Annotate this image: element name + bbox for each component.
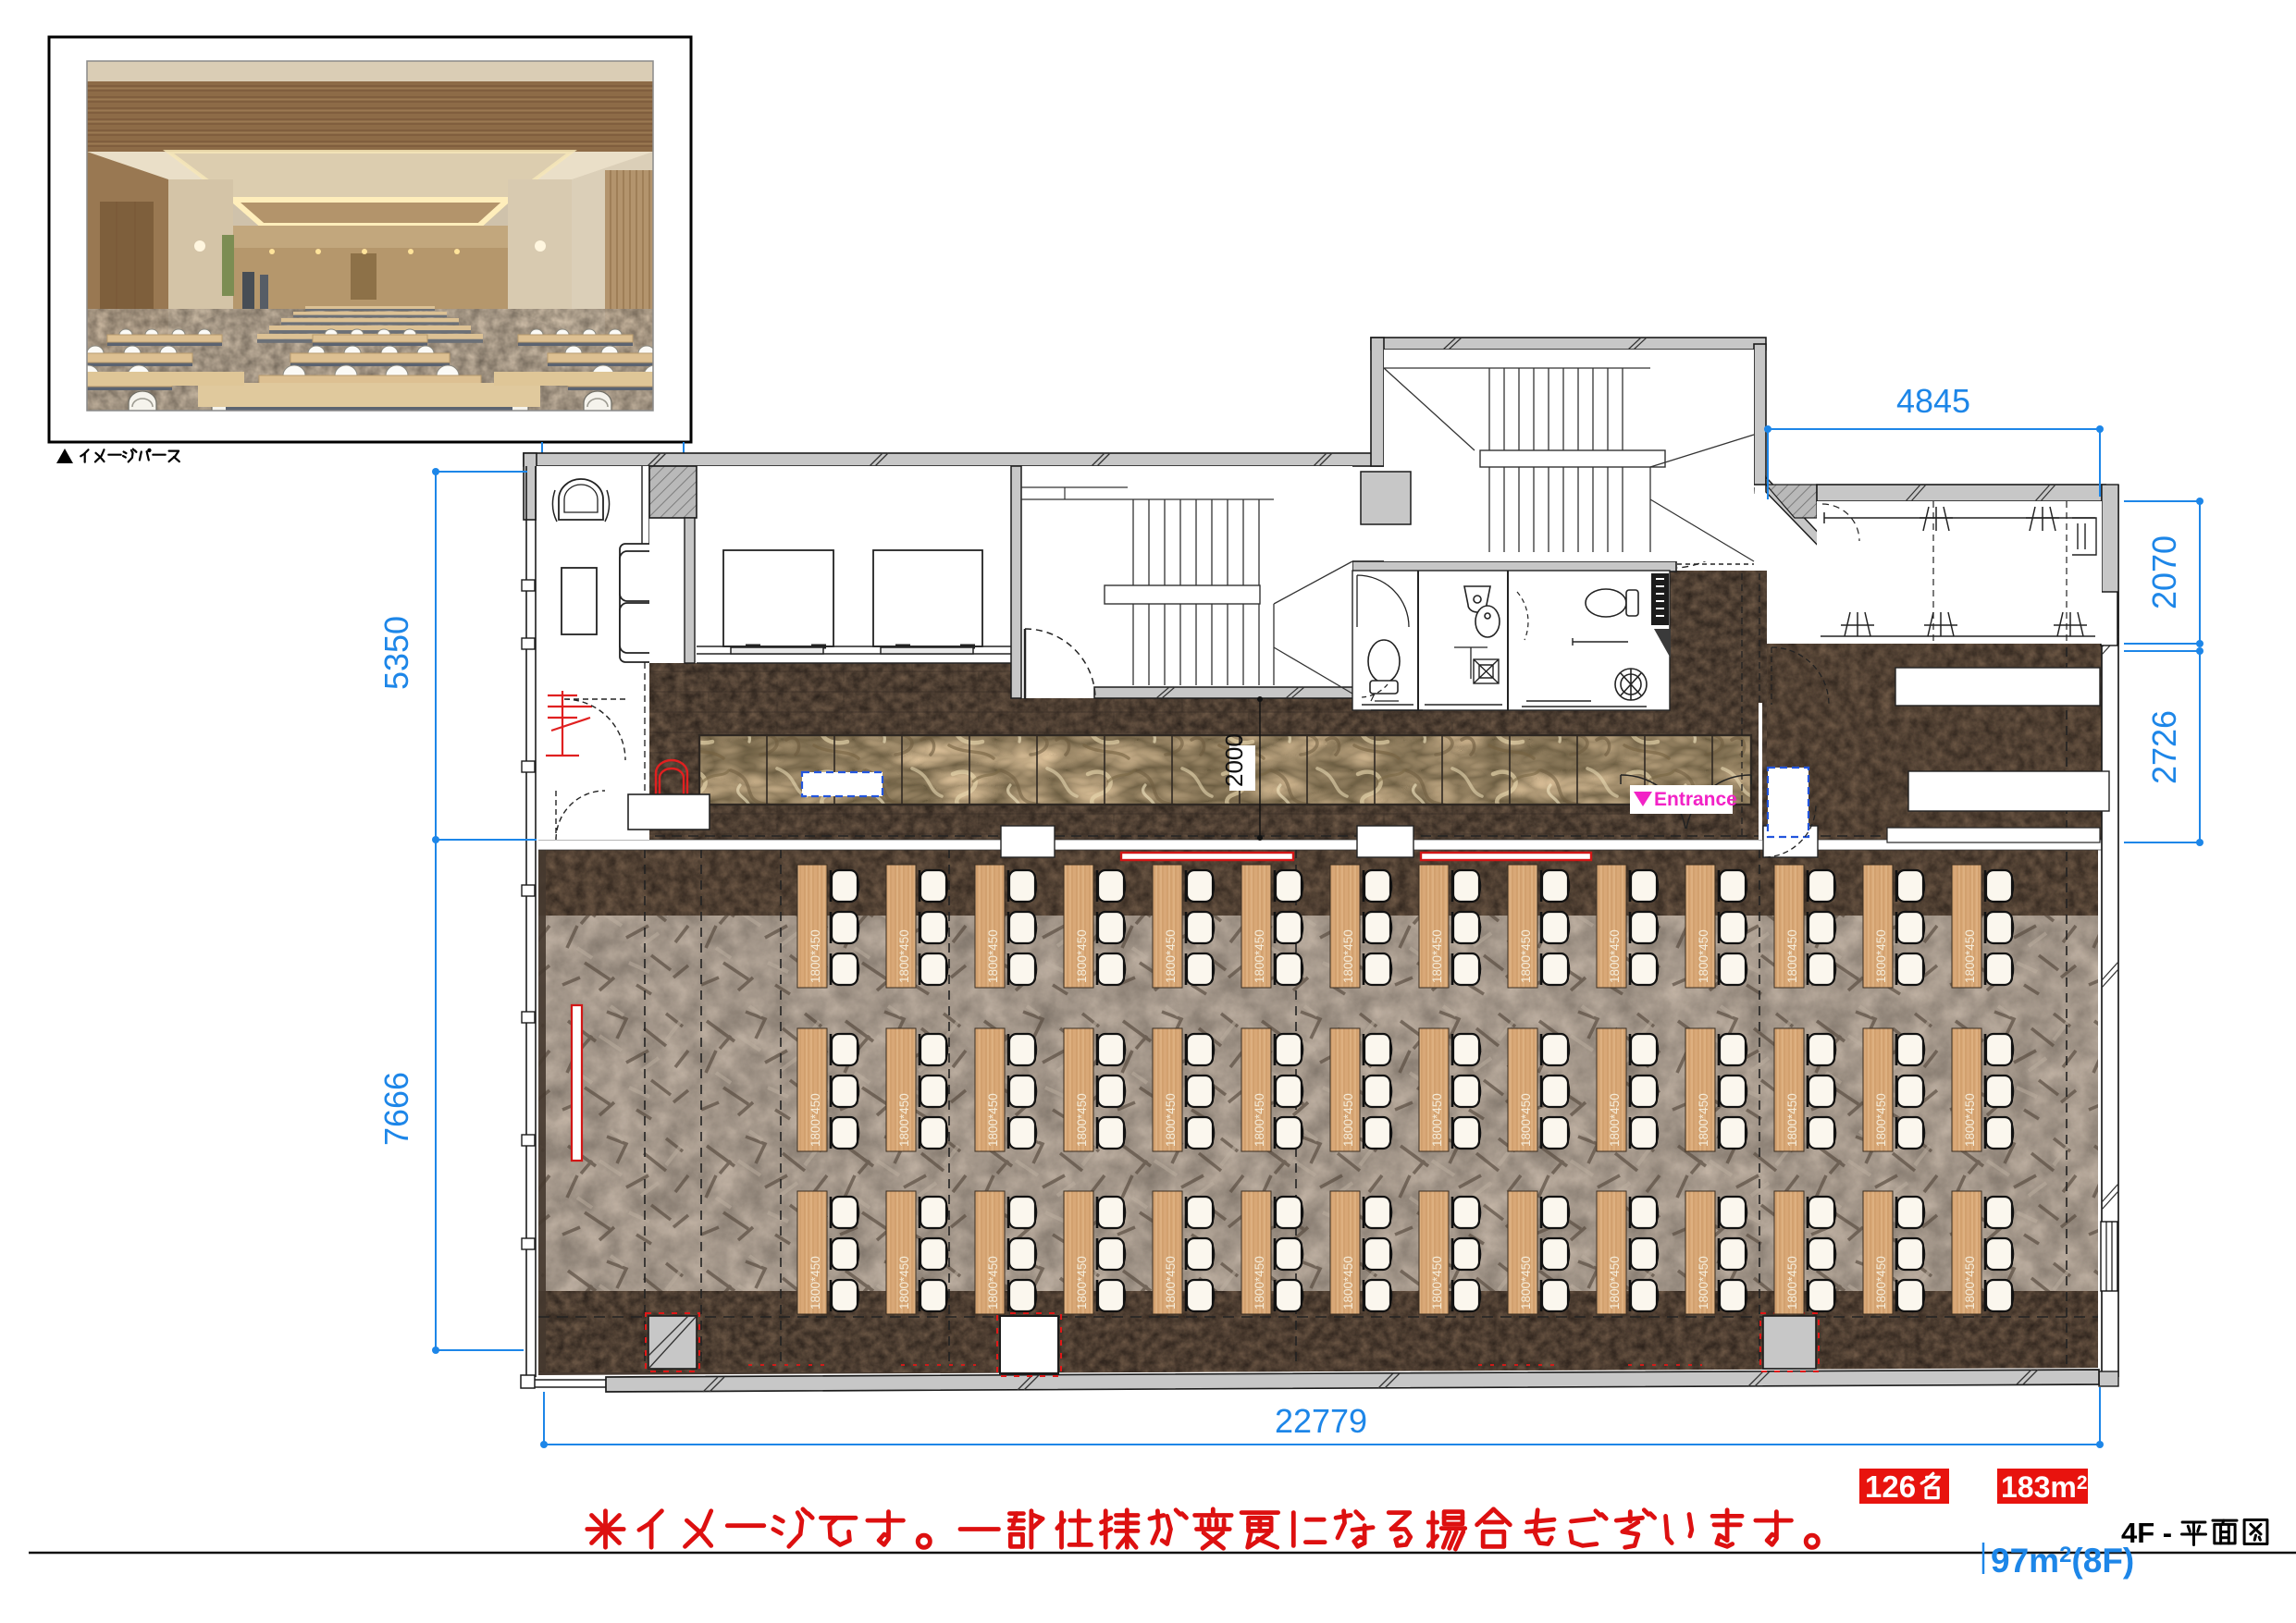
svg-text:1800*450: 1800*450: [1253, 1093, 1266, 1147]
svg-text:2726: 2726: [2145, 710, 2183, 784]
svg-text:1800*450: 1800*450: [1874, 1093, 1888, 1147]
svg-text:1800*450: 1800*450: [1963, 1093, 1977, 1147]
svg-text:1800*450: 1800*450: [809, 929, 822, 983]
svg-text:2070: 2070: [2145, 535, 2183, 609]
svg-text:1800*450: 1800*450: [1963, 1256, 1977, 1309]
svg-text:1800*450: 1800*450: [1164, 929, 1178, 983]
svg-text:1800*450: 1800*450: [1075, 929, 1089, 983]
svg-text:5350: 5350: [377, 616, 415, 690]
svg-text:1800*450: 1800*450: [1341, 1093, 1355, 1147]
svg-text:4845: 4845: [1896, 382, 1970, 420]
svg-text:1800*450: 1800*450: [1164, 1093, 1178, 1147]
svg-text:1800*450: 1800*450: [897, 1093, 911, 1147]
svg-text:1800*450: 1800*450: [1075, 1093, 1089, 1147]
svg-text:1800*450: 1800*450: [1341, 1256, 1355, 1309]
svg-text:1800*450: 1800*450: [1697, 1256, 1710, 1309]
svg-text:1800*450: 1800*450: [897, 929, 911, 983]
svg-text:1800*450: 1800*450: [1341, 929, 1355, 983]
svg-text:2000: 2000: [1220, 733, 1248, 787]
svg-text:1800*450: 1800*450: [1075, 1256, 1089, 1309]
svg-text:126: 126: [1865, 1469, 1916, 1504]
svg-text:1800*450: 1800*450: [809, 1256, 822, 1309]
svg-text:1800*450: 1800*450: [1874, 929, 1888, 983]
svg-text:1800*450: 1800*450: [1430, 929, 1444, 983]
svg-text:7666: 7666: [377, 1072, 415, 1146]
svg-text:183m2: 183m2: [2001, 1470, 2088, 1504]
svg-text:1800*450: 1800*450: [1608, 929, 1622, 983]
svg-text:1800*450: 1800*450: [1785, 1256, 1799, 1309]
svg-text:1800*450: 1800*450: [1519, 1093, 1533, 1147]
svg-text:1800*450: 1800*450: [1697, 1093, 1710, 1147]
svg-text:1800*450: 1800*450: [897, 1256, 911, 1309]
svg-text:1800*450: 1800*450: [1874, 1256, 1888, 1309]
svg-text:1800*450: 1800*450: [1963, 929, 1977, 983]
svg-text:1800*450: 1800*450: [986, 1256, 1000, 1309]
svg-text:1800*450: 1800*450: [1785, 1093, 1799, 1147]
svg-text:1800*450: 1800*450: [1608, 1256, 1622, 1309]
svg-text:1800*450: 1800*450: [986, 1093, 1000, 1147]
svg-text:22779: 22779: [1275, 1402, 1367, 1440]
svg-text:1800*450: 1800*450: [1697, 929, 1710, 983]
svg-text:1800*450: 1800*450: [1430, 1093, 1444, 1147]
svg-text:1800*450: 1800*450: [1164, 1256, 1178, 1309]
svg-text:1800*450: 1800*450: [1608, 1093, 1622, 1147]
svg-text:1800*450: 1800*450: [1785, 929, 1799, 983]
svg-text:1800*450: 1800*450: [1519, 1256, 1533, 1309]
svg-text:1800*450: 1800*450: [986, 929, 1000, 983]
svg-text:Entrance: Entrance: [1654, 789, 1737, 810]
svg-text:1800*450: 1800*450: [1253, 929, 1266, 983]
svg-text:1800*450: 1800*450: [1519, 929, 1533, 983]
svg-text:1800*450: 1800*450: [1430, 1256, 1444, 1309]
svg-text:1800*450: 1800*450: [809, 1093, 822, 1147]
svg-text:1800*450: 1800*450: [1253, 1256, 1266, 1309]
